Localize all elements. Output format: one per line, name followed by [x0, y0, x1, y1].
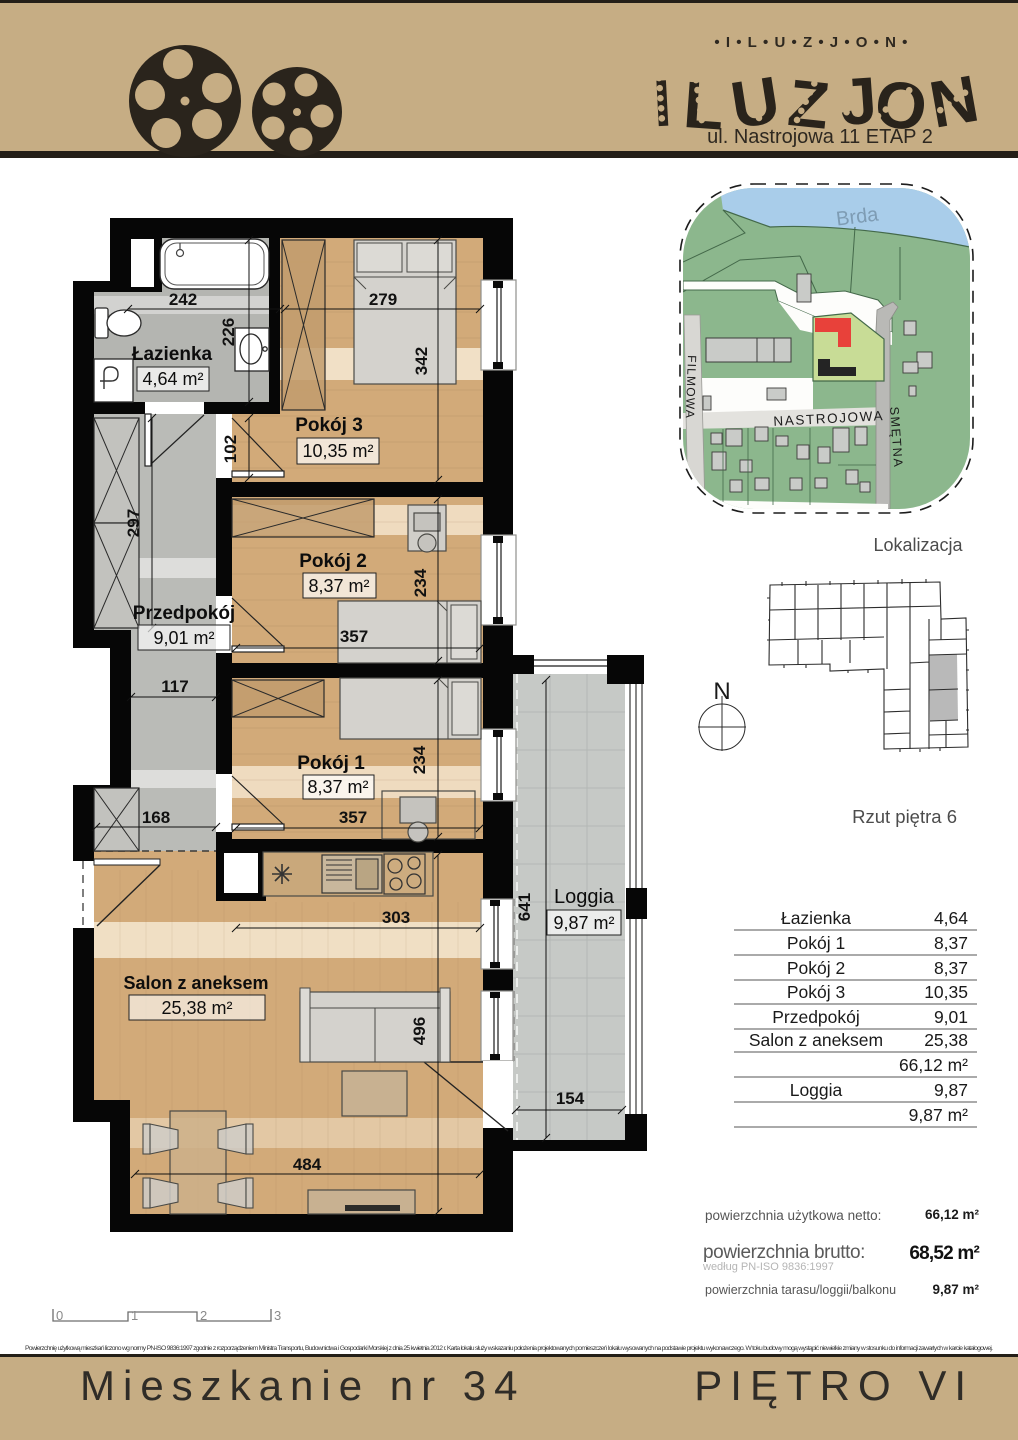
svg-text:357: 357 [340, 627, 368, 646]
svg-text:68,52 m²: 68,52 m² [909, 1243, 979, 1264]
svg-text:Przedpokój: Przedpokój [772, 1007, 860, 1027]
svg-text:Rzut piętra 6: Rzut piętra 6 [852, 806, 957, 827]
svg-text:Pokój 1: Pokój 1 [297, 753, 365, 774]
svg-text:Loggia: Loggia [790, 1080, 843, 1100]
svg-text:9,01: 9,01 [934, 1007, 968, 1027]
svg-text:8,37 m²: 8,37 m² [308, 576, 369, 596]
svg-text:Łazienka: Łazienka [781, 908, 851, 928]
svg-text:4,64: 4,64 [934, 908, 968, 928]
svg-text:Salon z aneksem: Salon z aneksem [749, 1030, 883, 1050]
svg-text:2: 2 [200, 1308, 207, 1323]
svg-text:279: 279 [369, 290, 397, 309]
svg-text:66,12 m²: 66,12 m² [925, 1207, 980, 1222]
svg-text:168: 168 [142, 808, 170, 827]
svg-text:297: 297 [124, 509, 143, 537]
svg-text:FILMOWA: FILMOWA [683, 355, 699, 419]
svg-text:powierzchnia tarasu/loggii/bal: powierzchnia tarasu/loggii/balkonu [705, 1283, 896, 1297]
svg-text:342: 342 [412, 347, 431, 375]
svg-text:9,87 m²: 9,87 m² [932, 1282, 979, 1297]
svg-text:242: 242 [169, 290, 197, 309]
svg-text:Przedpokój: Przedpokój [133, 603, 235, 624]
svg-text:4,64 m²: 4,64 m² [142, 369, 203, 389]
svg-text:496: 496 [410, 1017, 429, 1045]
svg-text:25,38 m²: 25,38 m² [161, 998, 232, 1018]
svg-text:102: 102 [221, 435, 240, 463]
svg-text:484: 484 [293, 1155, 322, 1174]
svg-text:Pokój 3: Pokój 3 [295, 415, 363, 436]
svg-text:Mieszkanie nr 34: Mieszkanie nr 34 [80, 1362, 525, 1409]
svg-text:234: 234 [410, 745, 429, 774]
svg-text:powierzchnia użytkowa netto:: powierzchnia użytkowa netto: [705, 1208, 881, 1223]
svg-text:Pokój 1: Pokój 1 [787, 933, 845, 953]
svg-text:9,87: 9,87 [934, 1080, 968, 1100]
svg-text:Pokój 3: Pokój 3 [787, 982, 845, 1002]
svg-text:Łazienka: Łazienka [132, 344, 213, 365]
svg-text:Pokój 2: Pokój 2 [299, 551, 367, 572]
svg-text:9,01 m²: 9,01 m² [153, 628, 214, 648]
svg-text:10,35: 10,35 [924, 982, 968, 1002]
svg-text:Salon z aneksem: Salon z aneksem [123, 973, 268, 993]
svg-text:66,12 m²: 66,12 m² [899, 1055, 968, 1075]
svg-text:0: 0 [56, 1308, 63, 1323]
svg-text:1: 1 [131, 1308, 138, 1323]
svg-text:303: 303 [382, 908, 410, 927]
svg-text:3: 3 [274, 1308, 281, 1323]
svg-text:8,37: 8,37 [934, 958, 968, 978]
svg-text:ul. Nastrojowa 11 ETAP 2: ul. Nastrojowa 11 ETAP 2 [707, 126, 933, 148]
svg-text:N: N [713, 678, 730, 705]
svg-text:•I•L•U•Z•J•O•N•: •I•L•U•Z•J•O•N• [714, 34, 913, 51]
svg-text:9,87 m²: 9,87 m² [553, 913, 614, 933]
svg-text:234: 234 [411, 568, 430, 597]
svg-text:226: 226 [219, 318, 238, 346]
svg-text:9,87 m²: 9,87 m² [909, 1105, 968, 1125]
svg-text:Powierzchnię użytkową mieszkań: Powierzchnię użytkową mieszkań liczono w… [25, 1345, 993, 1352]
svg-text:641: 641 [515, 893, 534, 921]
svg-text:Pokój 2: Pokój 2 [787, 958, 845, 978]
svg-text:8,37: 8,37 [934, 933, 968, 953]
svg-text:PIĘTRO VI: PIĘTRO VI [694, 1362, 974, 1409]
svg-text:8,37 m²: 8,37 m² [307, 777, 368, 797]
svg-text:154: 154 [556, 1089, 585, 1108]
svg-text:Loggia: Loggia [554, 886, 615, 908]
svg-text:według PN-ISO 9836:1997: według PN-ISO 9836:1997 [702, 1261, 834, 1273]
svg-text:10,35 m²: 10,35 m² [302, 441, 373, 461]
svg-text:I: I [651, 65, 673, 140]
svg-text:357: 357 [339, 808, 367, 827]
svg-text:powierzchnia brutto:: powierzchnia brutto: [703, 1242, 865, 1263]
svg-text:Lokalizacja: Lokalizacja [873, 535, 963, 555]
svg-text:25,38: 25,38 [924, 1030, 968, 1050]
svg-text:117: 117 [161, 677, 188, 696]
